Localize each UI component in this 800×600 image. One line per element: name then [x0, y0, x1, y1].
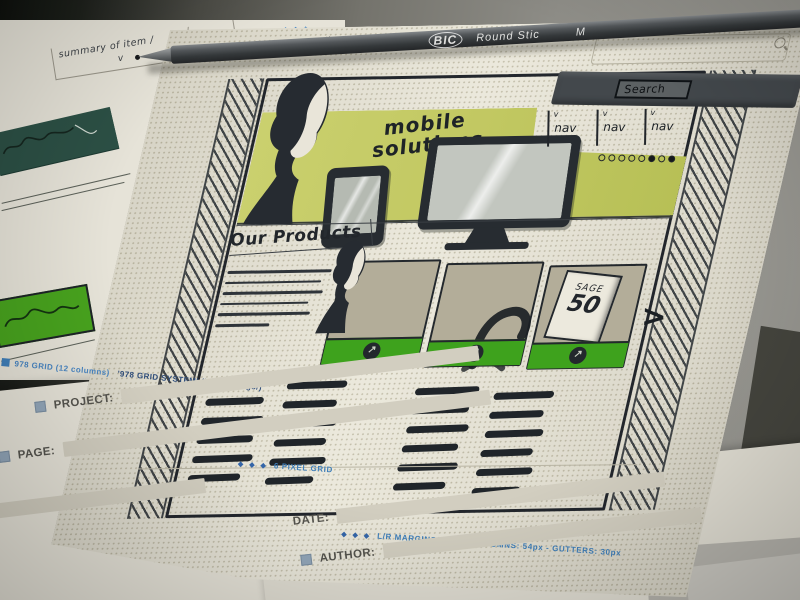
field-icon: [0, 451, 11, 463]
carousel-dot: [598, 154, 606, 161]
search-input: Search: [614, 79, 692, 99]
photo-of-wireframe-sketch: summary of item / v: [0, 0, 800, 600]
field-icon: [34, 401, 46, 413]
sketched-list-dash: [401, 444, 459, 453]
monitor-screen: [427, 143, 572, 221]
carousel-dot: [668, 155, 676, 162]
sketched-green-box: [0, 284, 95, 348]
sketch-rule-line: [2, 173, 131, 204]
cursive-scribble-icon: [0, 110, 106, 168]
field-icon: [300, 554, 312, 566]
sage-box-number: 50: [554, 291, 614, 319]
carousel-dot: [638, 155, 646, 162]
978-logo-block-icon: [1, 358, 10, 367]
sketched-header-bar: Search: [551, 71, 800, 108]
sketched-text-line: [217, 312, 310, 316]
sage-50-box: SAGE 50: [543, 270, 623, 344]
nav-item-3: v nav: [644, 109, 693, 146]
diamond-markers-icon: ◆ ◆ ◆: [341, 531, 371, 540]
carousel-dot: [648, 155, 656, 162]
nav-label: nav: [554, 121, 576, 135]
search-label: Search: [624, 82, 665, 96]
nav-label: nav: [652, 119, 674, 133]
nav-item-2: v nav: [596, 110, 645, 147]
carousel-dot: [618, 155, 626, 162]
sketched-list-dash: [282, 400, 338, 409]
pen-tip: [135, 55, 140, 60]
sketched-list-dash: [264, 476, 314, 485]
sketched-text-line: [220, 301, 309, 305]
pen-cone: [138, 48, 173, 64]
sketched-list-dash: [273, 438, 327, 447]
sketched-text-line: [227, 269, 332, 273]
nav-item-1: v nav: [547, 111, 596, 148]
carousel-dots: [598, 154, 675, 162]
sketched-teal-banner: [0, 107, 119, 175]
carousel-dot: [608, 154, 616, 161]
sketched-list-dash: [489, 410, 545, 419]
nav-caret-icon: v: [651, 108, 656, 117]
pen-brand-logo: BIC: [428, 31, 463, 49]
sketched-text-line: [215, 323, 270, 327]
pen-tip-size-label: M: [575, 26, 586, 39]
sketched-list-dash: [484, 429, 544, 438]
search-magnifier-icon: [773, 37, 787, 48]
carousel-dot: [658, 155, 666, 162]
cursive-scribble-icon: [0, 287, 89, 344]
nav-label: nav: [603, 120, 625, 134]
card-green-strip: ↗: [527, 341, 629, 369]
sketched-list-dash: [480, 448, 534, 457]
sketched-list-dash: [475, 467, 533, 476]
sketched-list-dash: [493, 391, 555, 400]
pen-model-label: Round Stic: [476, 29, 540, 45]
paper-corner: [685, 549, 800, 600]
nav-row: v nav v nav v nav: [543, 109, 697, 148]
date-label: DATE:: [292, 511, 329, 527]
dropdown-caret-note: v: [117, 53, 124, 64]
sketched-list-dash: [406, 424, 470, 433]
sketched-text-line: [225, 280, 322, 284]
nav-caret-icon: v: [602, 109, 607, 118]
go-arrow-icon: ↗: [567, 347, 588, 364]
sketch-rule-line: [2, 182, 125, 211]
sketched-list-dash: [392, 482, 446, 491]
sketched-list-dash: [205, 397, 265, 406]
nav-caret-icon: v: [554, 110, 559, 119]
sketched-text-line: [222, 291, 323, 295]
more-arrow: >: [641, 299, 668, 335]
monitor-base: [444, 242, 529, 250]
sketched-monitor: [417, 135, 582, 230]
page-label: PAGE:: [17, 445, 56, 461]
carousel-dot: [628, 155, 636, 162]
